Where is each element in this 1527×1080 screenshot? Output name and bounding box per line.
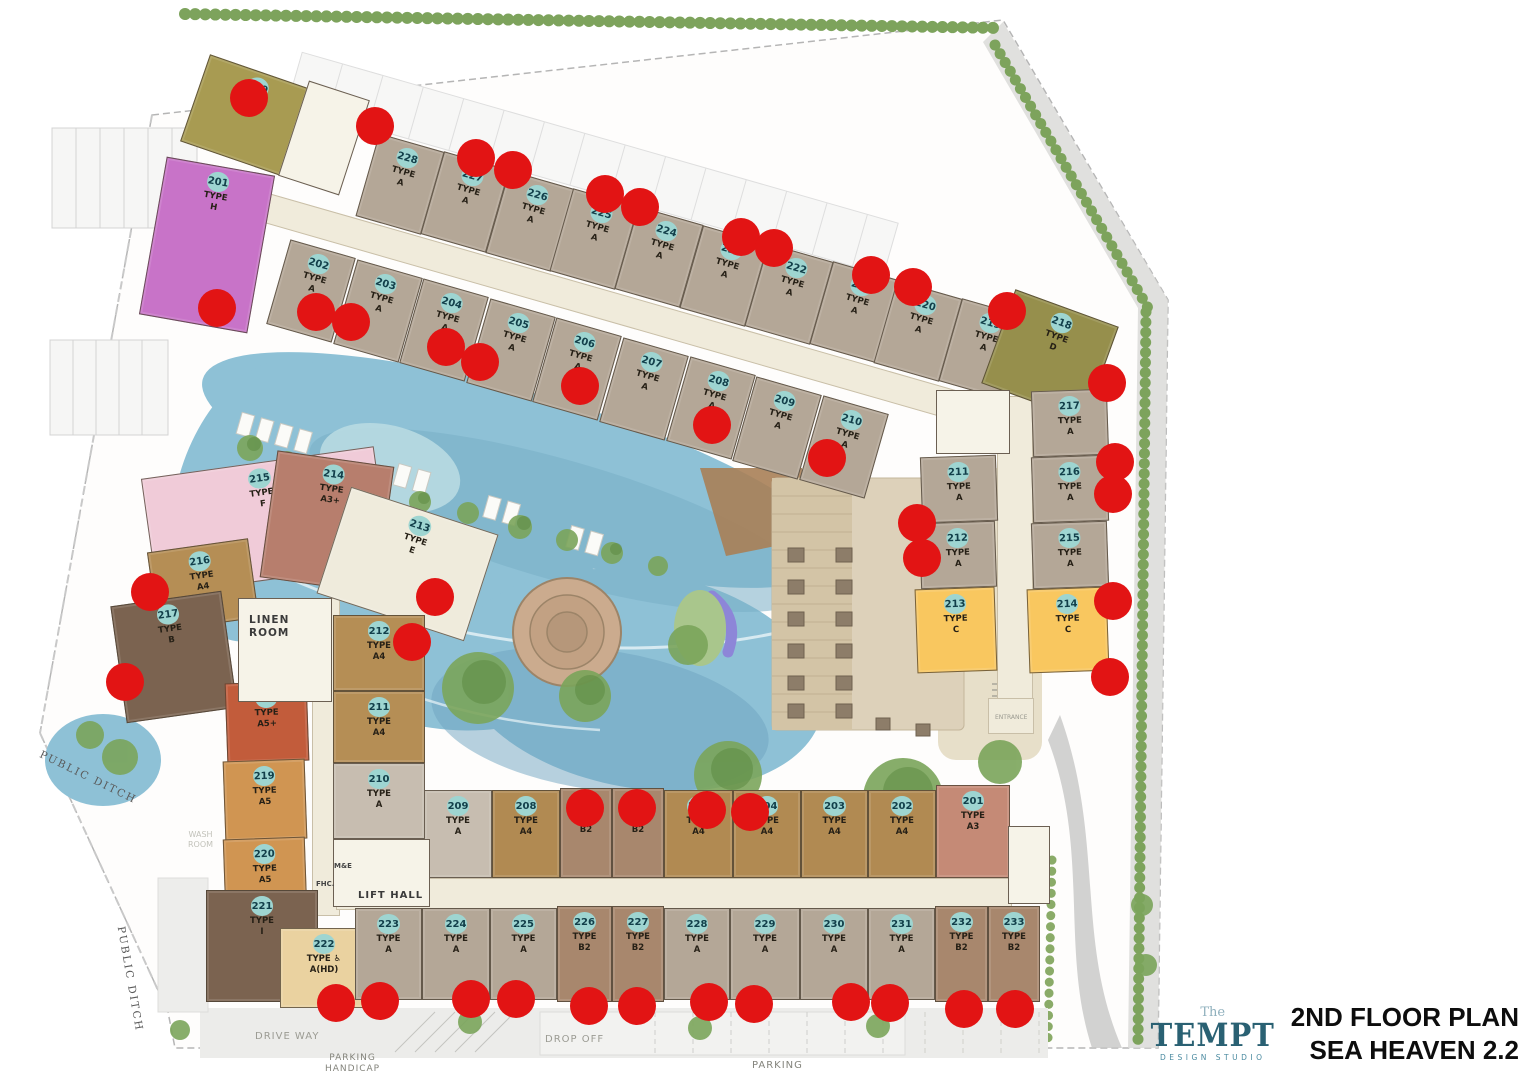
title-line2: SEA HEAVEN 2.2: [1291, 1034, 1519, 1067]
unit-marker-dot: [808, 439, 846, 477]
unit-marker-dot: [497, 980, 535, 1018]
unit-marker-dot: [618, 987, 656, 1025]
unit-number-badge: 221: [251, 896, 274, 916]
label-wash-room: WASH ROOM: [188, 830, 213, 850]
unit-type-letter: A: [453, 945, 460, 956]
unit-213-c[interactable]: 213TYPEC: [915, 587, 998, 674]
stair-block-rightwing: [936, 390, 1010, 454]
unit-type-word: TYPE: [444, 934, 468, 945]
unit-type-letter: A: [376, 800, 383, 811]
unit-number-badge: 220: [253, 844, 277, 865]
unit-type-letter: A: [655, 250, 664, 262]
unit-type-letter: B2: [578, 943, 590, 954]
label-m-e: M&E: [334, 862, 352, 871]
label-lift-hall: LIFT HALL: [358, 890, 423, 903]
unit-217-b[interactable]: 217TYPEB: [110, 591, 237, 723]
unit-number-badge: 222: [313, 934, 336, 954]
unit-type-word: TYPE: [1058, 416, 1082, 427]
unit-type-letter: A3+: [320, 494, 341, 507]
unit-232-b2[interactable]: 232TYPEB2: [935, 906, 988, 1002]
unit-marker-dot: [1088, 364, 1126, 402]
unit-type-word: TYPE: [377, 934, 401, 945]
unit-type-letter: A: [955, 559, 962, 570]
unit-type-word: TYPE: [950, 932, 974, 943]
unit-229-a[interactable]: 229TYPEA: [730, 908, 800, 1000]
unit-marker-dot: [903, 539, 941, 577]
unit-marker-dot: [621, 188, 659, 226]
label-drop-off: DROP OFF: [545, 1034, 604, 1047]
unit-type-letter: A: [914, 324, 923, 336]
unit-type-letter: A: [956, 493, 963, 504]
unit-number-badge: 209: [447, 796, 470, 816]
unit-marker-dot: [106, 663, 144, 701]
unit-type-letter: F: [260, 498, 267, 509]
unit-number-badge: 211: [947, 462, 971, 483]
unit-type-letter: C: [953, 625, 960, 636]
spa-island: [513, 578, 621, 686]
hedge-top: [185, 14, 1000, 28]
unit-marker-dot: [1094, 582, 1132, 620]
unit-marker-dot: [894, 268, 932, 306]
label-drive-way: DRIVE WAY: [255, 1031, 319, 1044]
unit-type-word: TYPE: [1058, 548, 1082, 559]
unit-type-letter: A4: [373, 728, 386, 739]
unit-number-badge: 210: [368, 769, 391, 789]
unit-number-badge: 213: [943, 594, 967, 615]
unit-type-letter: A: [850, 305, 859, 317]
unit-type-letter: A4: [896, 827, 909, 838]
unit-211-a4[interactable]: 211TYPEA4: [333, 691, 425, 763]
unit-marker-dot: [393, 623, 431, 661]
unit-type-letter: A: [694, 945, 701, 956]
unit-type-letter: A: [640, 381, 649, 393]
unit-201-a3[interactable]: 201TYPEA3: [936, 785, 1010, 878]
label-fhc: FHC.: [316, 880, 334, 889]
unit-marker-dot: [755, 229, 793, 267]
unit-marker-dot: [690, 983, 728, 1021]
unit-marker-dot: [452, 980, 490, 1018]
unit-marker-dot: [230, 79, 268, 117]
unit-marker-dot: [361, 982, 399, 1020]
unit-type-letter: A5+: [257, 718, 277, 729]
unit-type-letter: A: [979, 342, 988, 354]
unit-number-badge: 224: [445, 914, 468, 934]
unit-number-badge: 230: [823, 914, 846, 934]
unit-marker-dot: [871, 984, 909, 1022]
unit-marker-dot: [494, 151, 532, 189]
unit-type-word: TYPE: [1002, 932, 1026, 943]
unit-type-letter: A: [396, 177, 405, 189]
unit-number-badge: 225: [512, 914, 535, 934]
unit-type-word: TYPE: [1058, 482, 1082, 493]
label-parking: PARKING: [752, 1060, 803, 1073]
unit-209-a[interactable]: 209TYPEA: [424, 790, 492, 878]
unit-type-word: TYPE: [367, 789, 391, 800]
unit-type-word: TYPE: [367, 641, 391, 652]
unit-marker-dot: [693, 406, 731, 444]
unit-number-badge: 232: [950, 912, 973, 932]
unit-number-badge: 203: [823, 796, 846, 816]
unit-type-word: TYPE: [250, 916, 274, 927]
unit-number-badge: 229: [754, 914, 777, 934]
left-lane: [158, 878, 208, 1012]
unit-marker-dot: [566, 789, 604, 827]
unit-number-badge: 227: [627, 912, 650, 932]
unit-type-word: TYPE: [890, 934, 914, 945]
unit-number-badge: 201: [962, 791, 985, 811]
floor-plan-canvas: 228TYPEA227TYPEA226TYPEA225TYPEA224TYPEA…: [0, 0, 1527, 1080]
unit-marker-dot: [1091, 658, 1129, 696]
unit-type-letter: E: [407, 545, 416, 557]
unit-type-word: TYPE: [367, 717, 391, 728]
unit-type-letter: B2: [955, 943, 967, 954]
unit-number-badge: 217: [1058, 396, 1082, 417]
unit-type-letter: A: [526, 214, 535, 226]
unit-type-letter: A: [720, 269, 729, 281]
unit-type-word: TYPE: [512, 934, 536, 945]
unit-number-badge: 208: [515, 796, 538, 816]
unit-type-word: TYPE: [626, 932, 650, 943]
label-entrance: ENTRANCE: [995, 714, 1027, 722]
unit-type-letter: A4: [828, 827, 841, 838]
unit-number-badge: 212: [368, 621, 391, 641]
unit-type-letter: A: [455, 827, 462, 838]
unit-marker-dot: [1094, 475, 1132, 513]
unit-type-letter: A: [1067, 559, 1074, 570]
unit-type-letter: A: [461, 195, 470, 207]
unit-type-letter: B2: [632, 943, 644, 954]
unit-type-letter: A: [831, 945, 838, 956]
unit-marker-dot: [586, 175, 624, 213]
unit-type-letter: A: [898, 945, 905, 956]
unit-number-badge: 223: [377, 914, 400, 934]
logo-name: TEMPT: [1149, 1019, 1277, 1052]
unit-type-word: TYPE: [823, 816, 847, 827]
unit-208-a4[interactable]: 208TYPEA4: [492, 790, 560, 878]
unit-type-letter: A: [773, 420, 782, 432]
unit-type-letter: A: [1067, 493, 1074, 504]
unit-marker-dot: [561, 367, 599, 405]
unit-type-letter: A: [520, 945, 527, 956]
unit-type-letter: A: [590, 232, 599, 244]
unit-type-word: TYPE: [890, 816, 914, 827]
label-linen-room: LINEN ROOM: [249, 614, 289, 640]
unit-marker-dot: [618, 789, 656, 827]
stair-block-bottomright: [1008, 826, 1050, 904]
unit-marker-dot: [317, 984, 355, 1022]
unit-type-word: TYPE ♿: [307, 954, 342, 965]
unit-type-word: TYPE: [947, 482, 971, 493]
logo-subtitle: DESIGN STUDIO: [1149, 1053, 1277, 1062]
tempt-logo: The TEMPT DESIGN STUDIO: [1149, 1005, 1277, 1062]
unit-type-letter: B2: [1008, 943, 1020, 954]
unit-marker-dot: [198, 289, 236, 327]
unit-marker-dot: [356, 107, 394, 145]
unit-203-a4[interactable]: 203TYPEA4: [801, 790, 868, 878]
unit-marker-dot: [457, 139, 495, 177]
unit-233-b2[interactable]: 233TYPEB2: [988, 906, 1040, 1002]
unit-type-letter: A(HD): [310, 965, 339, 976]
unit-marker-dot: [996, 990, 1034, 1028]
unit-marker-dot: [416, 578, 454, 616]
unit-231-a[interactable]: 231TYPEA: [868, 908, 935, 1000]
unit-marker-dot: [735, 985, 773, 1023]
unit-number-badge: 211: [368, 697, 391, 717]
unit-type-letter: A: [1067, 427, 1074, 438]
unit-marker-dot: [688, 791, 726, 829]
unit-marker-dot: [297, 293, 335, 331]
unit-marker-dot: [427, 328, 465, 366]
unit-number-badge: 216: [1058, 462, 1082, 483]
unit-type-letter: A4: [196, 581, 210, 593]
unit-marker-dot: [988, 292, 1026, 330]
unit-type-word: TYPE: [685, 934, 709, 945]
unit-type-letter: I: [260, 927, 263, 938]
unit-202-a4[interactable]: 202TYPEA4: [868, 790, 936, 878]
unit-marker-dot: [131, 573, 169, 611]
unit-type-letter: B: [168, 634, 176, 645]
unit-type-word: TYPE: [822, 934, 846, 945]
unit-number-badge: 219: [252, 766, 276, 787]
unit-type-letter: A5: [259, 874, 272, 885]
unit-type-letter: C: [1065, 625, 1072, 636]
unit-type-letter: D: [1048, 341, 1058, 353]
unit-type-word: TYPE: [514, 816, 538, 827]
unit-type-letter: A4: [373, 652, 386, 663]
unit-type-word: TYPE: [946, 548, 970, 559]
unit-type-word: TYPE: [753, 934, 777, 945]
unit-number-badge: 226: [573, 912, 596, 932]
unit-type-word: TYPE: [1055, 614, 1079, 625]
unit-number-badge: 212: [946, 528, 970, 549]
unit-type-letter: A5: [259, 796, 272, 807]
unit-marker-dot: [852, 256, 890, 294]
unit-type-word: TYPE: [253, 864, 277, 875]
unit-marker-dot: [570, 987, 608, 1025]
unit-type-letter: A4: [761, 827, 774, 838]
unit-number-badge: 233: [1003, 912, 1026, 932]
unit-type-word: TYPE: [573, 932, 597, 943]
label-parking-handicap: PARKING HANDICAP: [325, 1053, 380, 1076]
unit-number-badge: 214: [1055, 594, 1079, 615]
unit-marker-dot: [461, 343, 499, 381]
unit-type-word: TYPE: [253, 786, 277, 797]
unit-219-a5[interactable]: 219TYPEA5: [223, 759, 308, 842]
title-block: The TEMPT DESIGN STUDIO 2ND FLOOR PLAN S…: [1149, 1001, 1519, 1066]
unit-number-badge: 228: [686, 914, 709, 934]
unit-210-a[interactable]: 210TYPEA: [333, 763, 425, 839]
unit-type-letter: A: [385, 945, 392, 956]
unit-marker-dot: [731, 793, 769, 831]
unit-type-word: TYPE: [446, 816, 470, 827]
unit-type-letter: H: [209, 202, 218, 214]
unit-marker-dot: [898, 504, 936, 542]
unit-type-letter: A: [507, 342, 516, 354]
unit-number-badge: 202: [891, 796, 914, 816]
unit-type-letter: A4: [520, 827, 533, 838]
unit-number-badge: 231: [890, 914, 913, 934]
corridor-lift-hall: [336, 878, 1012, 910]
unit-marker-dot: [945, 990, 983, 1028]
unit-number-badge: 215: [1058, 528, 1082, 549]
page-title: 2ND FLOOR PLAN SEA HEAVEN 2.2: [1291, 1001, 1519, 1066]
unit-type-word: TYPE: [961, 811, 985, 822]
unit-type-letter: A3: [967, 822, 980, 833]
unit-type-letter: A: [374, 303, 383, 315]
unit-215-a[interactable]: 215TYPEA: [1031, 521, 1109, 590]
title-line1: 2ND FLOOR PLAN: [1291, 1001, 1519, 1034]
unit-marker-dot: [332, 303, 370, 341]
unit-type-word: TYPE: [943, 614, 967, 625]
unit-marker-dot: [832, 983, 870, 1021]
unit-type-letter: A: [785, 287, 794, 299]
unit-type-letter: A: [762, 945, 769, 956]
